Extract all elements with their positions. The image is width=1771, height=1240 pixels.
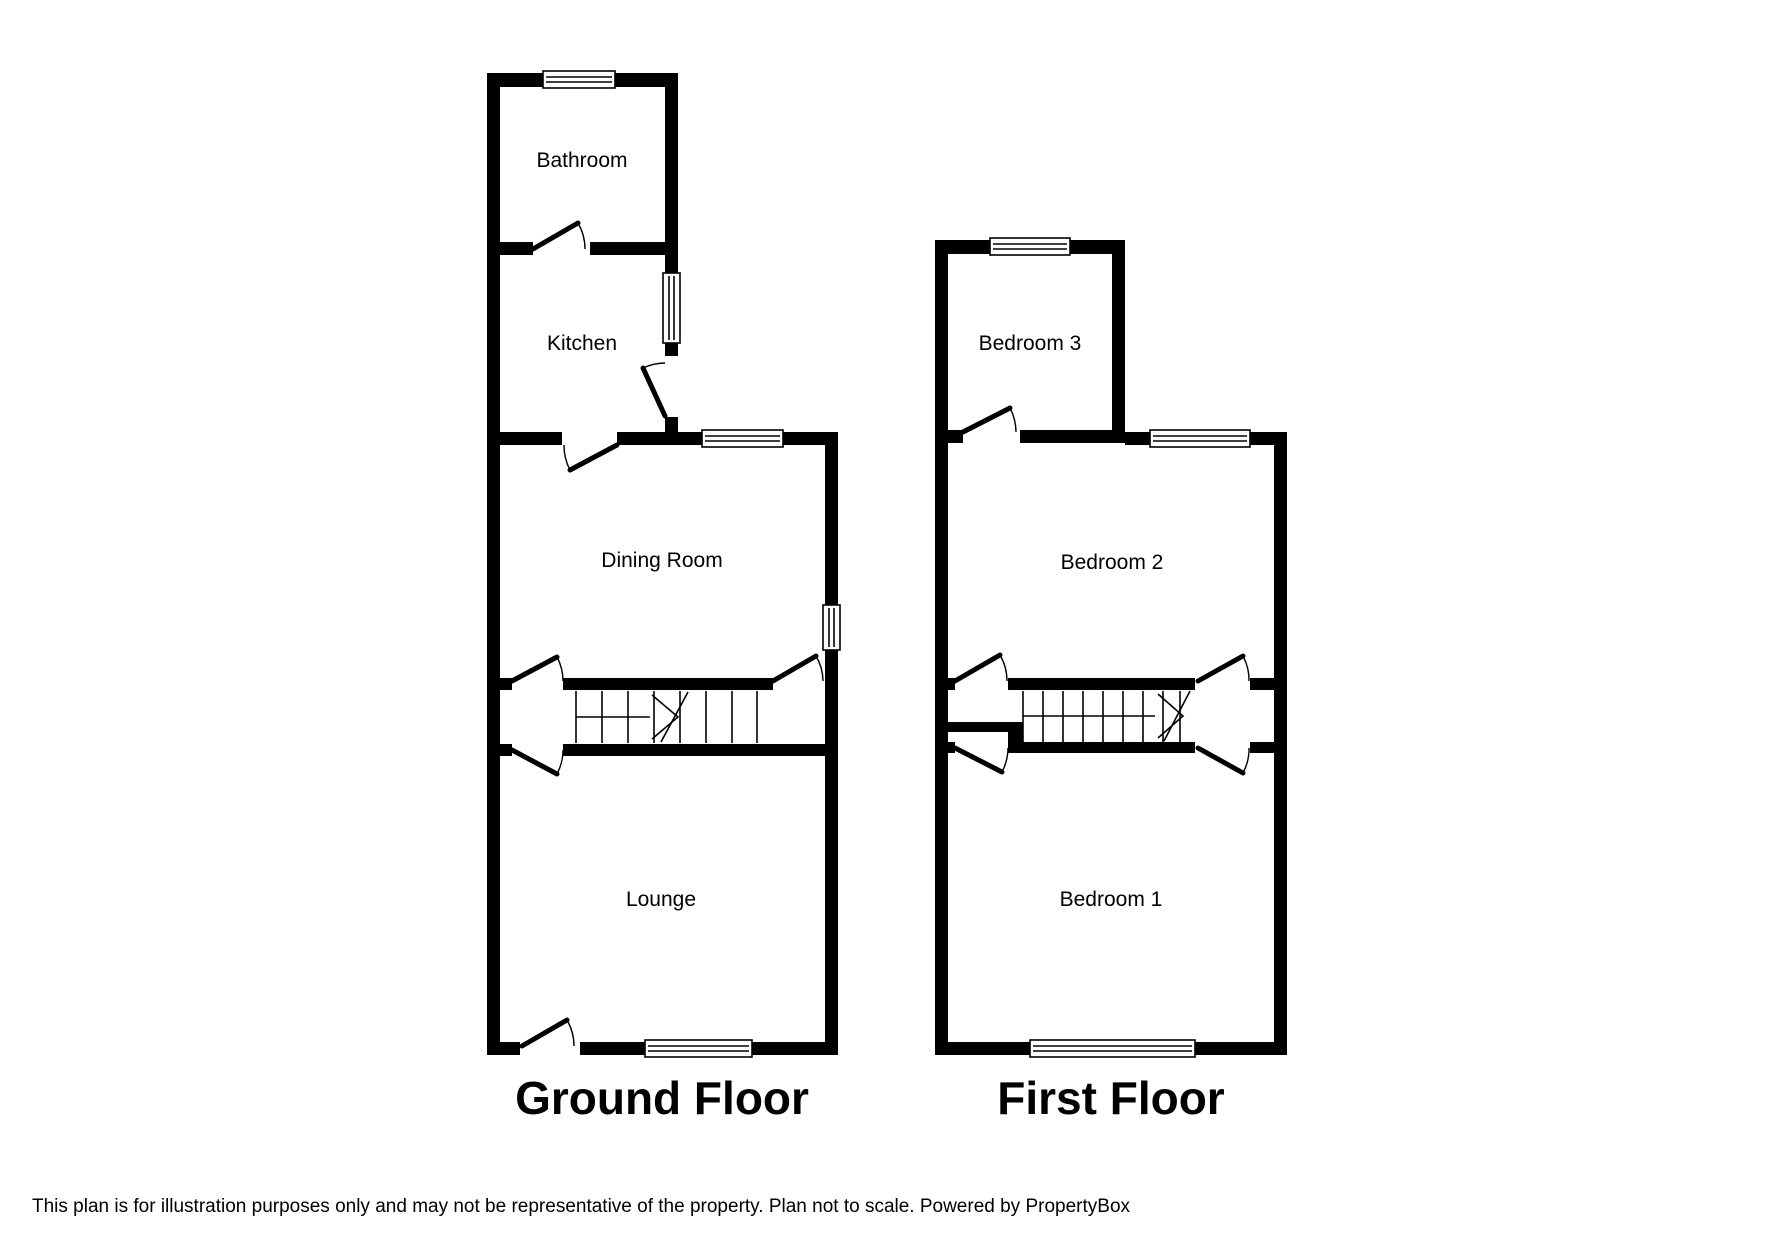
door-swing bbox=[963, 408, 1016, 432]
room-label-bedroom-2: Bedroom 2 bbox=[1002, 548, 1222, 578]
wall-segment bbox=[825, 648, 838, 1055]
room-label-lounge: Lounge bbox=[551, 885, 771, 915]
window bbox=[645, 1040, 752, 1057]
door-swing bbox=[955, 748, 1008, 772]
room-label-bedroom-3: Bedroom 3 bbox=[920, 329, 1140, 359]
wall-segment bbox=[1274, 432, 1287, 1055]
window bbox=[702, 430, 783, 447]
wall-segment bbox=[678, 432, 702, 445]
window bbox=[990, 238, 1070, 255]
wall-segment bbox=[1195, 1042, 1287, 1055]
wall-segment bbox=[1020, 430, 1125, 443]
wall-segment bbox=[1250, 678, 1274, 690]
wall-segment bbox=[825, 432, 838, 607]
disclaimer-text: This plan is for illustration purposes o… bbox=[32, 1196, 1130, 1218]
door-swing bbox=[1198, 656, 1249, 681]
wall-segment bbox=[935, 240, 948, 1055]
wall-segment bbox=[948, 722, 1008, 732]
wall-segment bbox=[487, 1042, 520, 1055]
wall-segment bbox=[617, 432, 678, 445]
wall-segment bbox=[1008, 722, 1023, 753]
first-floor-walls bbox=[935, 240, 1287, 1055]
wall-segment bbox=[935, 430, 963, 443]
wall-segment bbox=[487, 432, 562, 445]
wall-segment bbox=[1250, 742, 1274, 753]
ground-floor-title: Ground Floor bbox=[412, 1072, 912, 1124]
door-swing bbox=[533, 223, 585, 249]
wall-segment bbox=[1125, 432, 1150, 445]
window bbox=[1030, 1040, 1195, 1057]
floor-plan-page: Bathroom Kitchen Dining Room Lounge Bedr… bbox=[0, 0, 1771, 1240]
wall-segment bbox=[752, 1042, 838, 1055]
floor-plan-drawing bbox=[0, 0, 1771, 1240]
first-floor-title: First Floor bbox=[861, 1072, 1361, 1124]
ground-floor-stairs bbox=[576, 691, 757, 743]
wall-segment bbox=[487, 73, 500, 1055]
room-label-kitchen: Kitchen bbox=[472, 329, 692, 359]
wall-segment bbox=[563, 744, 825, 756]
wall-segment bbox=[580, 1042, 645, 1055]
wall-segment bbox=[590, 242, 678, 255]
wall-segment bbox=[563, 678, 773, 690]
wall-segment bbox=[935, 1042, 1030, 1055]
wall-segment bbox=[487, 242, 533, 255]
door-swing bbox=[564, 445, 617, 470]
wall-segment bbox=[1008, 678, 1195, 690]
window bbox=[543, 71, 615, 88]
door-swing bbox=[955, 655, 1007, 681]
room-label-bedroom-1: Bedroom 1 bbox=[1001, 885, 1221, 915]
first-floor-plan bbox=[935, 238, 1287, 1057]
wall-segment bbox=[1023, 742, 1195, 753]
first-floor-doors bbox=[955, 408, 1249, 773]
door-swing bbox=[773, 656, 823, 681]
door-swing bbox=[1198, 748, 1249, 773]
window bbox=[1150, 430, 1250, 447]
door-swing bbox=[522, 1020, 574, 1046]
room-label-dining-room: Dining Room bbox=[552, 546, 772, 576]
window bbox=[823, 605, 840, 650]
door-swing bbox=[643, 363, 665, 416]
door-swing bbox=[512, 657, 563, 681]
room-label-bathroom: Bathroom bbox=[472, 146, 692, 176]
first-floor-stairs bbox=[1023, 691, 1190, 742]
door-swing bbox=[512, 750, 563, 774]
